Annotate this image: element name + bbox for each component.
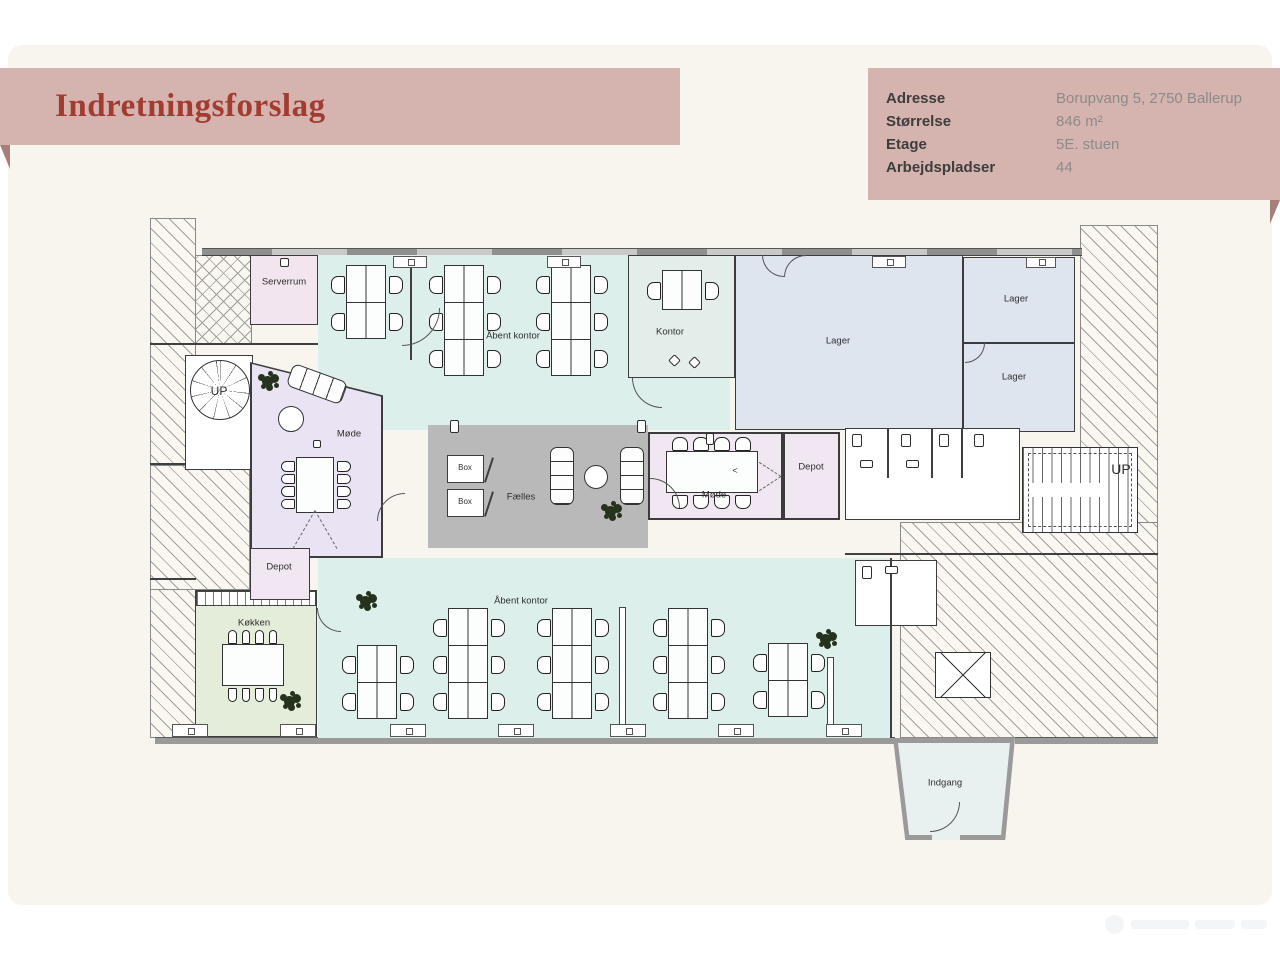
plant-koekken [284,696,295,707]
chair [281,486,295,497]
title-banner: Indretningsforslag [0,68,680,145]
exterior-topleft [195,255,252,345]
chair [487,350,501,368]
desk-cluster-6p-e [448,608,488,719]
chair [228,630,237,644]
conference-table-moede-center [666,451,758,493]
chair [337,499,351,510]
window-sill-top-3 [872,256,906,268]
window-sill-bottom-2 [280,724,316,737]
window-sill-top-2 [547,256,581,268]
chair [491,693,505,711]
chair [537,656,551,674]
chair [536,313,550,331]
partition-bottom-office-1 [619,607,626,733]
label-kontor: Kontor [656,327,684,337]
watermark-logo-icon [1105,915,1124,934]
label-moede-center: Møde [702,490,726,500]
wc-2 [901,434,911,447]
label-up-left: UP [211,385,228,397]
info-value-etage: 5E. stuen [1056,136,1119,153]
chair [389,313,403,331]
chair [389,276,403,294]
chair [594,350,608,368]
wc-4 [974,434,984,447]
label-faelles: Fælles [507,492,536,502]
label-open-office-bottom: Åbent kontor [494,596,548,606]
table-top [296,457,334,513]
label-projector-arrow: < [732,467,737,476]
chair [595,693,609,711]
window-sill-bottom-4 [498,724,534,737]
page: Indretningsforslag Adresse Borupvang 5, … [0,0,1280,960]
desk-divider [444,302,484,303]
chair [753,654,767,672]
chair [337,474,351,485]
desk-divider [448,682,488,683]
page-title: Indretningsforslag [55,88,326,125]
chair [487,276,501,294]
desk-cluster-4p-h [768,643,808,717]
sink-2 [906,460,919,468]
chair [595,619,609,637]
faelles-door-post-2 [637,420,646,433]
toilet-divider-3 [961,428,963,478]
desk-cluster-6p-f [552,608,592,719]
banner-fold-left [0,145,10,169]
desk-divider [768,680,808,681]
chair [400,693,414,711]
plant-office-bottom-left [360,596,371,607]
chair [433,656,447,674]
label-open-office-top: Åbent kontor [486,331,540,341]
window-sill-bottom-5 [610,724,646,737]
chair [594,313,608,331]
room-depot-center [783,432,840,520]
info-label-etage: Etage [886,136,1056,153]
info-value-adresse: Borupvang 5, 2750 Ballerup [1056,90,1242,107]
desk-divider [551,302,591,303]
label-lager-big: Lager [826,336,850,346]
chair [429,350,443,368]
label-lager-bottom: Lager [1002,372,1026,382]
chair [281,474,295,485]
label-depot-left: Depot [266,562,291,572]
room-depot-left [250,548,310,600]
chair [433,693,447,711]
wc-3 [939,434,949,447]
plant-moede-left [262,376,273,387]
desk-divider [551,339,591,340]
chair [400,656,414,674]
floor-plan: ServerrumÅbent kontorKontorLagerLagerLag… [150,210,1160,845]
moede-center-fixture [706,433,714,445]
desk-divider [668,682,708,683]
chair [653,656,667,674]
chair [653,693,667,711]
desk-cluster-6p-g [668,608,708,719]
chair [337,486,351,497]
label-up-right: UP [1111,462,1130,476]
chair [331,276,345,294]
chair [331,313,345,331]
chair [429,276,443,294]
wall-topleft-divider [150,343,318,345]
chair [735,437,751,451]
desk-kontor-2p [662,270,702,310]
sink-1 [860,460,873,468]
window-sill-bottom-7 [826,724,862,737]
window-sill-bottom-1 [172,724,208,737]
chair [537,619,551,637]
desk-cluster-4p-a [346,265,386,339]
desk-table [444,265,484,376]
desk-table [448,608,488,719]
chair [269,630,278,644]
moede-left-fixture [313,440,321,448]
faelles-door-post-1 [450,420,459,433]
exterior-left-mid [150,465,250,590]
sink-br [885,566,898,574]
desk-table [668,608,708,719]
window-sill-bottom-3 [390,724,426,737]
chair [653,619,667,637]
desk-divider [552,645,592,646]
sofa-faelles-1 [550,447,574,505]
desk-divider [444,339,484,340]
entrance-door-gap [932,831,960,840]
plant-faelles [605,506,616,517]
chair [269,688,278,702]
chair [242,688,251,702]
chair [255,630,264,644]
chair [536,276,550,294]
chair [811,691,825,709]
desk-cluster-6p-c [551,265,591,376]
info-label-stoerrelse: Størrelse [886,113,1056,130]
chair [228,688,237,702]
desk-divider [346,302,386,303]
plant-office-bottom-right [820,634,831,645]
sofa-faelles-2 [620,447,644,505]
label-moede-left: Møde [337,429,361,439]
chair [536,350,550,368]
chair [711,619,725,637]
label-box-2: Box [458,498,472,506]
info-row-arbejdspladser: Arbejdspladser 44 [886,156,1280,179]
window-sill-top-1 [393,256,427,268]
label-lager-top: Lager [1004,294,1028,304]
room-faelles [428,425,648,548]
wc-1 [852,434,862,447]
stair-right [1022,447,1138,533]
serverrum-fixture [280,258,289,267]
chair [242,630,251,644]
dining-table-koekken [222,644,284,686]
toilet-divider-2 [931,428,933,478]
chair [811,654,825,672]
chair [753,691,767,709]
chair [281,461,295,472]
window-sill-bottom-6 [718,724,754,737]
chair [433,619,447,637]
label-depot-center: Depot [798,462,823,472]
info-value-arbejdspladser: 44 [1056,159,1073,176]
label-koekken: Køkken [238,618,270,628]
watermark [1105,912,1275,938]
info-label-arbejdspladser: Arbejdspladser [886,159,1056,176]
desk-table [551,265,591,376]
conference-table-moede-left [296,457,334,513]
facade-bottom-right [1015,737,1158,744]
wc-br [862,566,872,579]
entrance-vestibule [893,738,1015,840]
chair [487,313,501,331]
chair [735,495,751,509]
watermark-bar [1241,920,1267,929]
chair [491,619,505,637]
chair [281,499,295,510]
desk-table [662,270,702,310]
facade-bottom-left [155,737,895,744]
table-top [666,451,758,493]
chair [537,693,551,711]
chair [711,656,725,674]
desk-table [552,608,592,719]
wall-leftband-cut2 [150,578,196,580]
round-table-faelles [584,465,608,489]
chair [672,437,688,451]
property-info-box: Adresse Borupvang 5, 2750 Ballerup Størr… [868,68,1280,200]
desk-divider [448,645,488,646]
info-value-stoerrelse: 846 m² [1056,113,1103,130]
info-row-etage: Etage 5E. stuen [886,133,1280,156]
table-top [222,644,284,686]
chair [491,656,505,674]
chair [342,656,356,674]
info-row-adresse: Adresse Borupvang 5, 2750 Ballerup [886,87,1280,110]
chair [714,437,730,451]
chair [337,461,351,472]
chair [342,693,356,711]
desk-cluster-4p-d [357,645,397,719]
chair [711,693,725,711]
entrance-vestibule-floor [898,743,1010,835]
wall-office-east [890,558,892,738]
infobox-fold-right [1270,200,1280,224]
chair [255,688,264,702]
label-serverrum: Serverrum [262,277,306,287]
chair [595,656,609,674]
watermark-bar [1131,920,1189,929]
desk-divider [552,682,592,683]
desk-divider [357,682,397,683]
desk-divider [668,645,708,646]
watermark-bar [1195,920,1235,929]
window-sill-top-4 [1026,257,1056,268]
chair [594,276,608,294]
info-label-adresse: Adresse [886,90,1056,107]
chair [647,282,661,300]
round-table-moede-left [278,406,304,432]
info-row-stoerrelse: Størrelse 846 m² [886,110,1280,133]
desk-cluster-6p-b [444,265,484,376]
toilet-divider-1 [887,428,889,478]
chair [705,282,719,300]
label-box-1: Box [458,464,472,472]
shaft-box [935,652,991,698]
wall-hatch-top [845,553,1158,555]
label-indgang: Indgang [928,778,962,788]
